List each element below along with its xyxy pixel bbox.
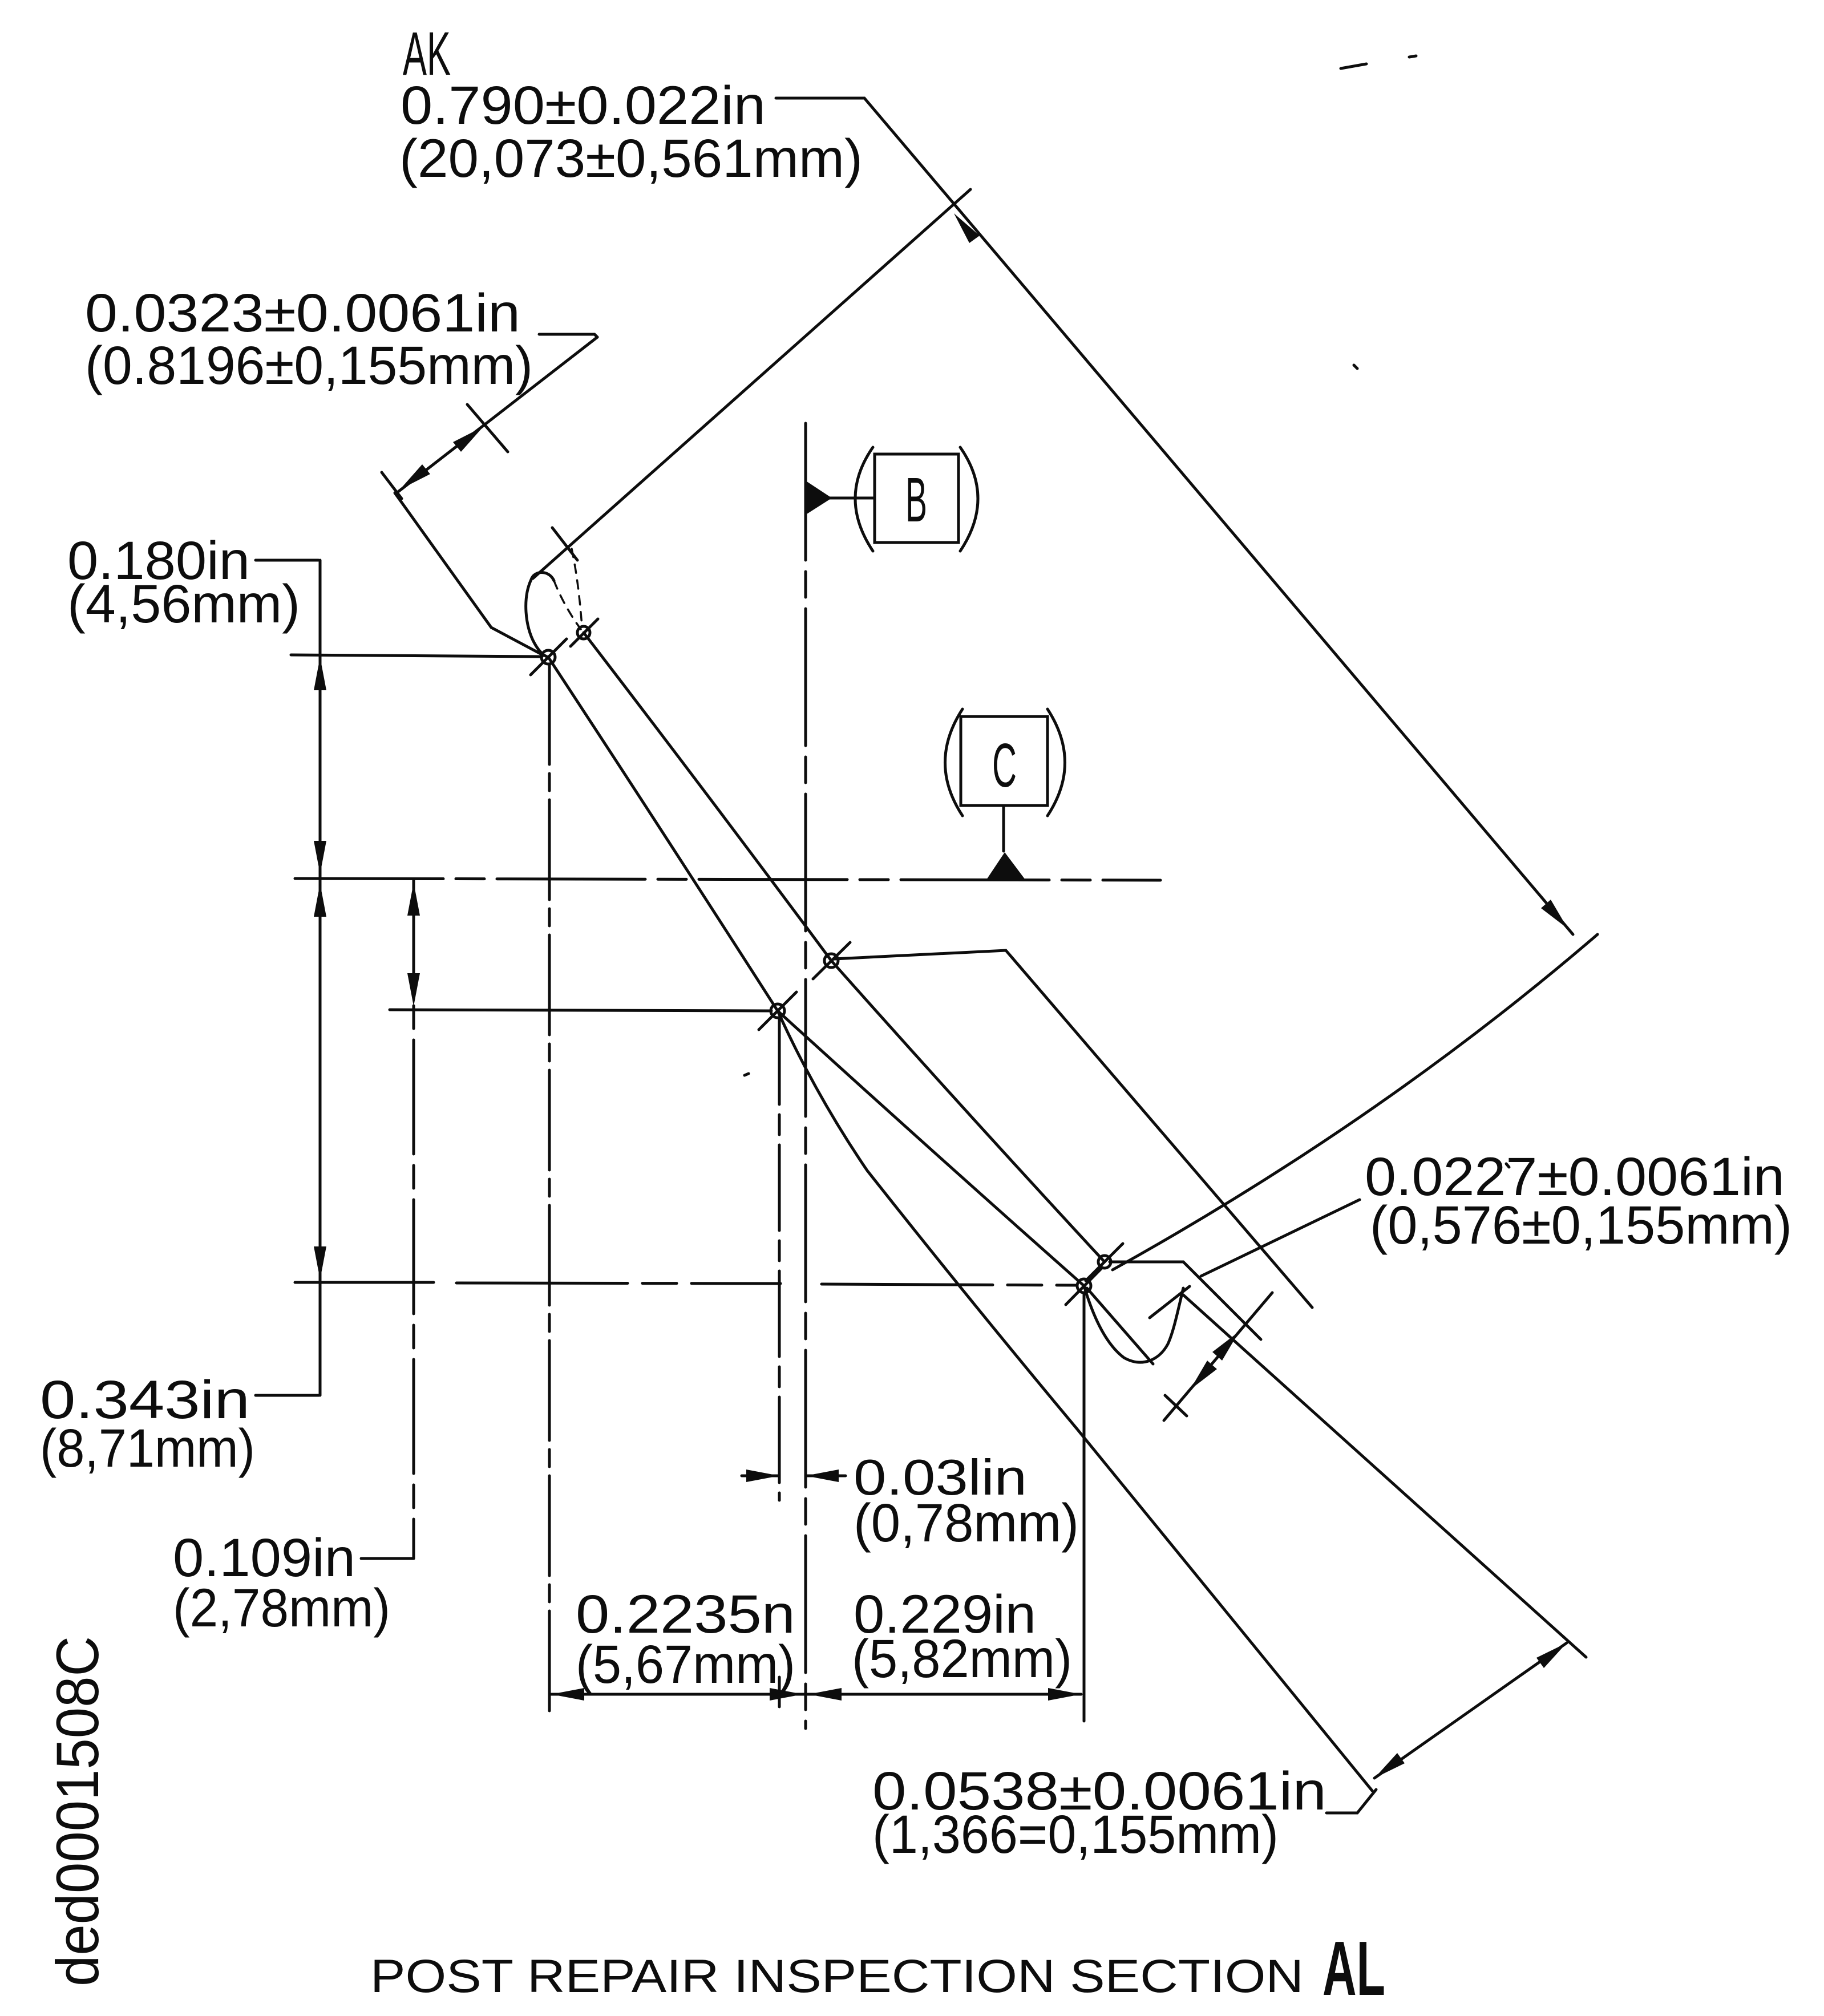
svg-text:POST REPAIR INSPECTION SECTION: POST REPAIR INSPECTION SECTION bbox=[370, 1950, 1304, 2002]
svg-text:0.0323±0.0061in: 0.0323±0.0061in bbox=[85, 283, 520, 343]
svg-text:(1,366=0,155mm): (1,366=0,155mm) bbox=[872, 1804, 1279, 1865]
svg-text:C: C bbox=[992, 731, 1017, 800]
svg-text:(5,67mm): (5,67mm) bbox=[576, 1634, 795, 1695]
svg-text:(2,78mm): (2,78mm) bbox=[173, 1578, 390, 1638]
svg-text:0.790±0.022in: 0.790±0.022in bbox=[401, 75, 766, 136]
svg-text:(5,82mm): (5,82mm) bbox=[852, 1629, 1072, 1689]
svg-text:ded0001508C: ded0001508C bbox=[45, 1636, 111, 1986]
svg-text:(0,78mm): (0,78mm) bbox=[854, 1493, 1079, 1553]
svg-text:B: B bbox=[905, 465, 927, 535]
svg-text:(20,073±0,561mm): (20,073±0,561mm) bbox=[399, 128, 863, 189]
svg-text:(0,576±0,155mm): (0,576±0,155mm) bbox=[1370, 1195, 1792, 1256]
svg-text:(8,71mm): (8,71mm) bbox=[40, 1418, 255, 1479]
svg-text:AL: AL bbox=[1322, 1925, 1385, 2011]
svg-text:(4,56mm): (4,56mm) bbox=[67, 574, 300, 634]
svg-text:(0.8196±0,155mm): (0.8196±0,155mm) bbox=[85, 335, 533, 396]
